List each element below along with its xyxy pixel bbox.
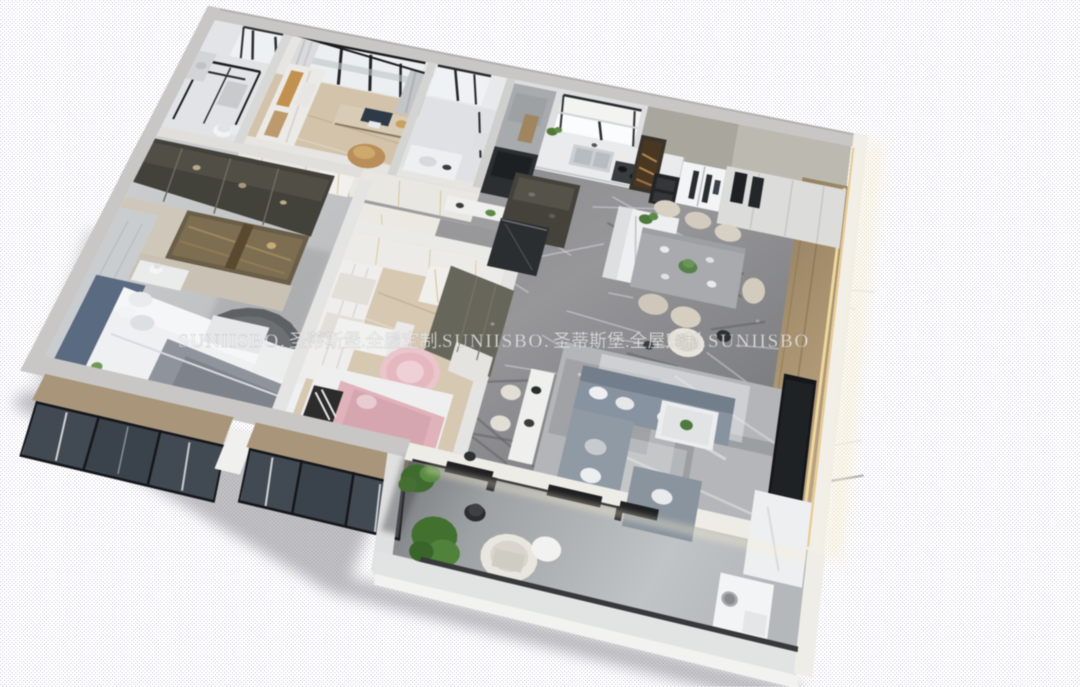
svg-text:SUNIISBO: SUNIISBO xyxy=(708,331,810,352)
svg-text:SUNIISBO.: SUNIISBO. xyxy=(442,331,551,352)
svg-text:*: * xyxy=(293,323,298,334)
svg-text:SUNIISBO.: SUNIISBO. xyxy=(178,331,287,352)
svg-text:圣蒂斯堡.全屋定制.: 圣蒂斯堡.全屋定制. xyxy=(289,331,442,351)
svg-text:圣蒂斯堡.全屋定制.: 圣蒂斯堡.全屋定制. xyxy=(553,331,706,351)
svg-text:*: * xyxy=(755,318,760,329)
svg-text:*: * xyxy=(490,321,495,332)
